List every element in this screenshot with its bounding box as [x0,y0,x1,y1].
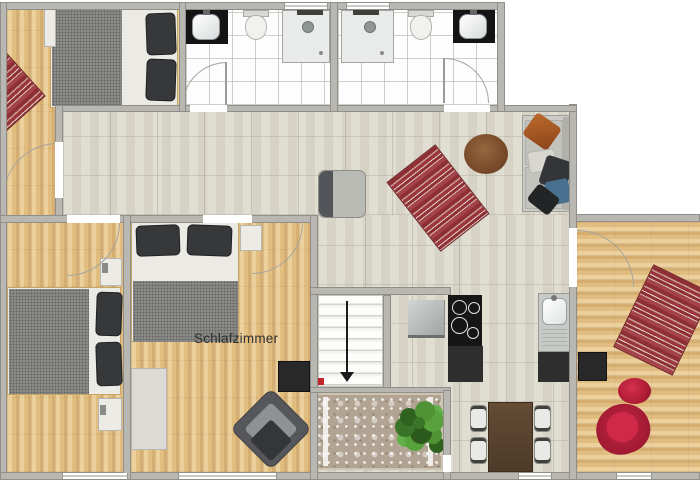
toilet-bowl [245,15,267,40]
bed-pillow [95,292,123,337]
toilet[interactable] [408,10,434,50]
wall [383,295,391,390]
double-bed[interactable] [50,8,178,108]
toilet[interactable] [243,10,269,50]
cooktop[interactable] [448,295,482,346]
sink-basin [542,298,567,325]
nightstand-lamp-icon [100,405,106,415]
stairs-red-marker [317,378,324,385]
door-opening[interactable] [444,105,490,112]
window[interactable] [284,3,328,9]
armchair[interactable] [318,170,366,218]
sofa[interactable] [522,115,570,212]
dining-chair[interactable] [470,405,487,432]
faucet-icon [470,10,477,15]
washbasin [192,14,220,40]
bed-pillow [95,342,123,387]
steel-counter[interactable] [408,300,445,338]
armchair-back [319,171,333,217]
kitchen-sink-unit[interactable] [538,293,571,352]
dining-chair[interactable] [470,437,487,464]
wall [310,215,318,480]
shower-tap-icon [353,10,379,15]
red-armchair-seat [603,408,643,446]
kitchen-base-cabinet[interactable] [538,352,572,382]
bed-pillow [145,12,176,55]
shower-drain-icon [380,51,384,55]
wall [497,2,505,112]
dining-table[interactable] [488,402,533,472]
dining-chair[interactable] [534,405,551,432]
washbasin [459,14,487,39]
window[interactable] [62,473,128,479]
nightstand-lamp-icon [102,263,108,273]
floor-plan: Schlafzimmer [0,0,700,485]
red-pouf[interactable] [618,378,651,404]
potted-plant[interactable] [413,417,425,429]
washbasin-counter[interactable] [453,10,495,43]
bed-duvet [9,289,89,394]
burner-icon [451,317,468,334]
wall [569,104,577,480]
door-opening[interactable] [67,215,120,223]
window[interactable] [616,473,652,479]
door-opening[interactable] [569,228,577,287]
door-leaf [443,58,445,103]
burner-icon [452,300,467,315]
shower-drain-icon [319,51,323,55]
double-bed[interactable] [131,218,239,342]
wall [310,287,451,295]
sink-drainboard [542,329,567,348]
shower[interactable] [341,10,394,63]
door-opening[interactable] [190,105,227,112]
wall [0,215,318,223]
bed-duvet [52,10,122,106]
shower-head-icon [364,21,376,33]
window[interactable] [518,473,552,479]
stairs-direction-arrow [346,301,348,374]
kitchen-base-cabinet[interactable] [448,346,483,382]
door-opening[interactable] [443,455,451,472]
nightstand[interactable] [98,398,122,431]
wall [0,2,505,10]
desk[interactable] [131,368,167,450]
window[interactable] [346,3,390,9]
faucet-icon [203,10,210,15]
ornamental-rug[interactable] [313,393,443,470]
wall [0,2,7,480]
faucet-icon [551,295,557,301]
nightstand[interactable] [44,9,56,47]
bed-pillow [135,224,180,257]
wall [575,214,700,222]
tv-board[interactable] [278,361,310,392]
rug-fringe [428,397,433,466]
shower-head-icon [302,21,314,33]
door-leaf [225,62,227,107]
burner-icon [468,302,480,314]
bed-pillow [186,224,232,257]
dining-chair[interactable] [534,437,551,464]
wall [179,2,186,112]
toilet-bowl [410,15,432,40]
tv-board[interactable] [578,352,607,381]
washbasin-counter[interactable] [186,10,228,44]
bed-pillow [145,58,176,101]
wall [123,215,131,480]
shower-tap-icon [297,10,323,15]
room-label-schlafzimmer: Schlafzimmer [194,331,278,346]
nightstand[interactable] [100,258,122,286]
shower[interactable] [282,10,330,63]
burner-icon [467,327,479,339]
stairs-arrowhead-icon [340,372,354,382]
door-opening [55,142,63,198]
wall [330,2,338,112]
wall [310,387,451,393]
double-bed[interactable] [7,287,121,395]
round-pouf[interactable] [464,134,508,174]
door-opening[interactable] [203,215,252,223]
window[interactable] [178,473,277,479]
rug-fringe [323,397,328,466]
